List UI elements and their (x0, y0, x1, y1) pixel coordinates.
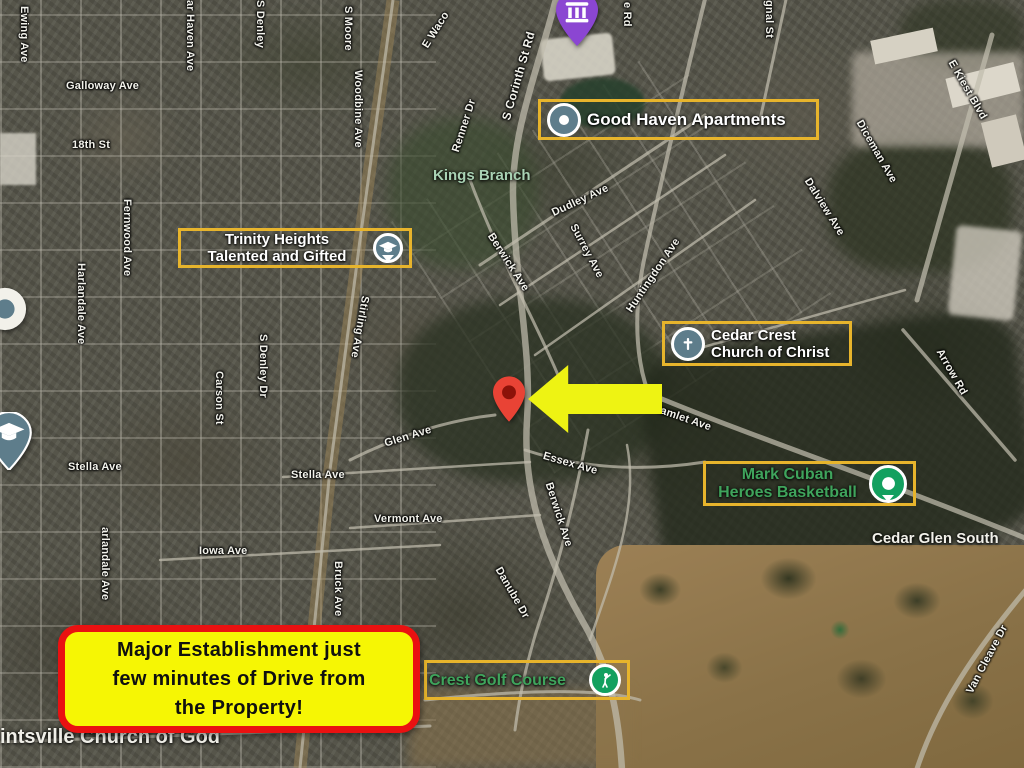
basketball-place-dot-icon (869, 465, 907, 503)
callout-line3: the Property! (175, 694, 303, 723)
poi-label: Crest Golf Course (429, 672, 583, 689)
street-label: arlandale Ave (99, 527, 111, 600)
worship-temple-pin[interactable] (556, 0, 598, 46)
area-label-kings-branch: Kings Branch (433, 167, 531, 184)
street-label: Berwick Ave (485, 231, 531, 294)
poi-label-line1: Mark Cuban (712, 466, 863, 484)
street-label: ar Haven Ave (184, 0, 196, 71)
poi-label-line2: Talented and Gifted (187, 248, 367, 265)
street-label: 18th St (72, 139, 110, 151)
street-label: Glen Ave (383, 424, 433, 450)
property-location-pin[interactable] (493, 374, 525, 424)
street-label: Berwick Ave (543, 481, 575, 548)
street-label: E Kiest Blvd (946, 58, 990, 122)
poi-trinity-heights-school[interactable]: Trinity Heights Talented and Gifted (178, 228, 412, 268)
poi-label-line1: Trinity Heights (187, 231, 367, 248)
street-label: Bruck Ave (332, 561, 344, 616)
poi-label: Good Haven Apartments (587, 111, 810, 128)
street-label: Fernwood Ave (121, 199, 133, 276)
street-label: S Denley Dr (257, 334, 269, 398)
street-label: Dudley Ave (550, 182, 610, 219)
street-label: Harlandale Ave (75, 263, 87, 344)
poi-good-haven-apartments[interactable]: Good Haven Apartments (538, 99, 819, 140)
street-label: gnal St (763, 0, 775, 38)
street-label: E Waco (420, 10, 452, 51)
poi-label-line2: Church of Christ (711, 344, 843, 361)
street-label: Diceman Ave (854, 118, 900, 185)
street-label: Vermont Ave (374, 513, 443, 525)
poi-label-line1: Cedar Crest (711, 327, 843, 344)
street-label: Essex Ave (542, 450, 599, 477)
street-label: Stirling Ave (348, 295, 371, 359)
street-label: Stella Ave (68, 461, 122, 473)
poi-label: Trinity Heights Talented and Gifted (187, 231, 367, 265)
poi-crest-golf-course[interactable]: Crest Golf Course (424, 660, 630, 700)
map-canvas[interactable]: Ewing Ave Galloway Ave 18th St ar Haven … (0, 0, 1024, 768)
street-label: S Denley (254, 0, 266, 48)
school-graduation-cap-icon (373, 233, 403, 263)
poi-mark-cuban-heroes-basketball[interactable]: Mark Cuban Heroes Basketball (703, 461, 916, 506)
callout-line1: Major Establishment just (117, 636, 361, 665)
street-label: Carson St (213, 371, 225, 425)
poi-cedar-crest-church[interactable]: Cedar Crest Church of Christ (662, 321, 852, 366)
callout-line2: few minutes of Drive from (112, 665, 365, 694)
street-label: Renner Dr (450, 98, 478, 154)
golf-golfer-icon (589, 664, 621, 696)
street-label: Dalview Ave (802, 176, 847, 238)
poi-label: Cedar Crest Church of Christ (711, 327, 843, 361)
street-label: Arrow Rd (934, 347, 970, 397)
street-label: Van Cleave Dr (964, 623, 1010, 696)
street-label: Iowa Ave (199, 545, 247, 557)
apartments-place-dot-icon (547, 103, 581, 137)
area-label-cedar-glen-south: Cedar Glen South (872, 530, 999, 547)
church-cross-icon (671, 327, 705, 361)
street-label: Ewing Ave (18, 6, 30, 63)
street-label: Danube Dr (493, 565, 532, 621)
street-label: Woodbine Ave (352, 70, 364, 148)
white-circle-pin-partial[interactable] (0, 286, 28, 332)
street-label: e Rd (621, 2, 633, 27)
street-label: Galloway Ave (66, 80, 139, 92)
street-label: Huntingdon Ave (624, 236, 683, 315)
school-graduation-pin[interactable] (0, 412, 32, 470)
street-label: S Corinth St Rd (499, 30, 538, 122)
street-label: S Moore (342, 6, 354, 51)
poi-label: Mark Cuban Heroes Basketball (712, 466, 863, 502)
street-label: Stella Ave (291, 469, 345, 481)
callout-banner: Major Establishment just few minutes of … (58, 625, 420, 733)
street-label: Surrey Ave (567, 222, 605, 280)
poi-label-line2: Heroes Basketball (712, 484, 863, 502)
